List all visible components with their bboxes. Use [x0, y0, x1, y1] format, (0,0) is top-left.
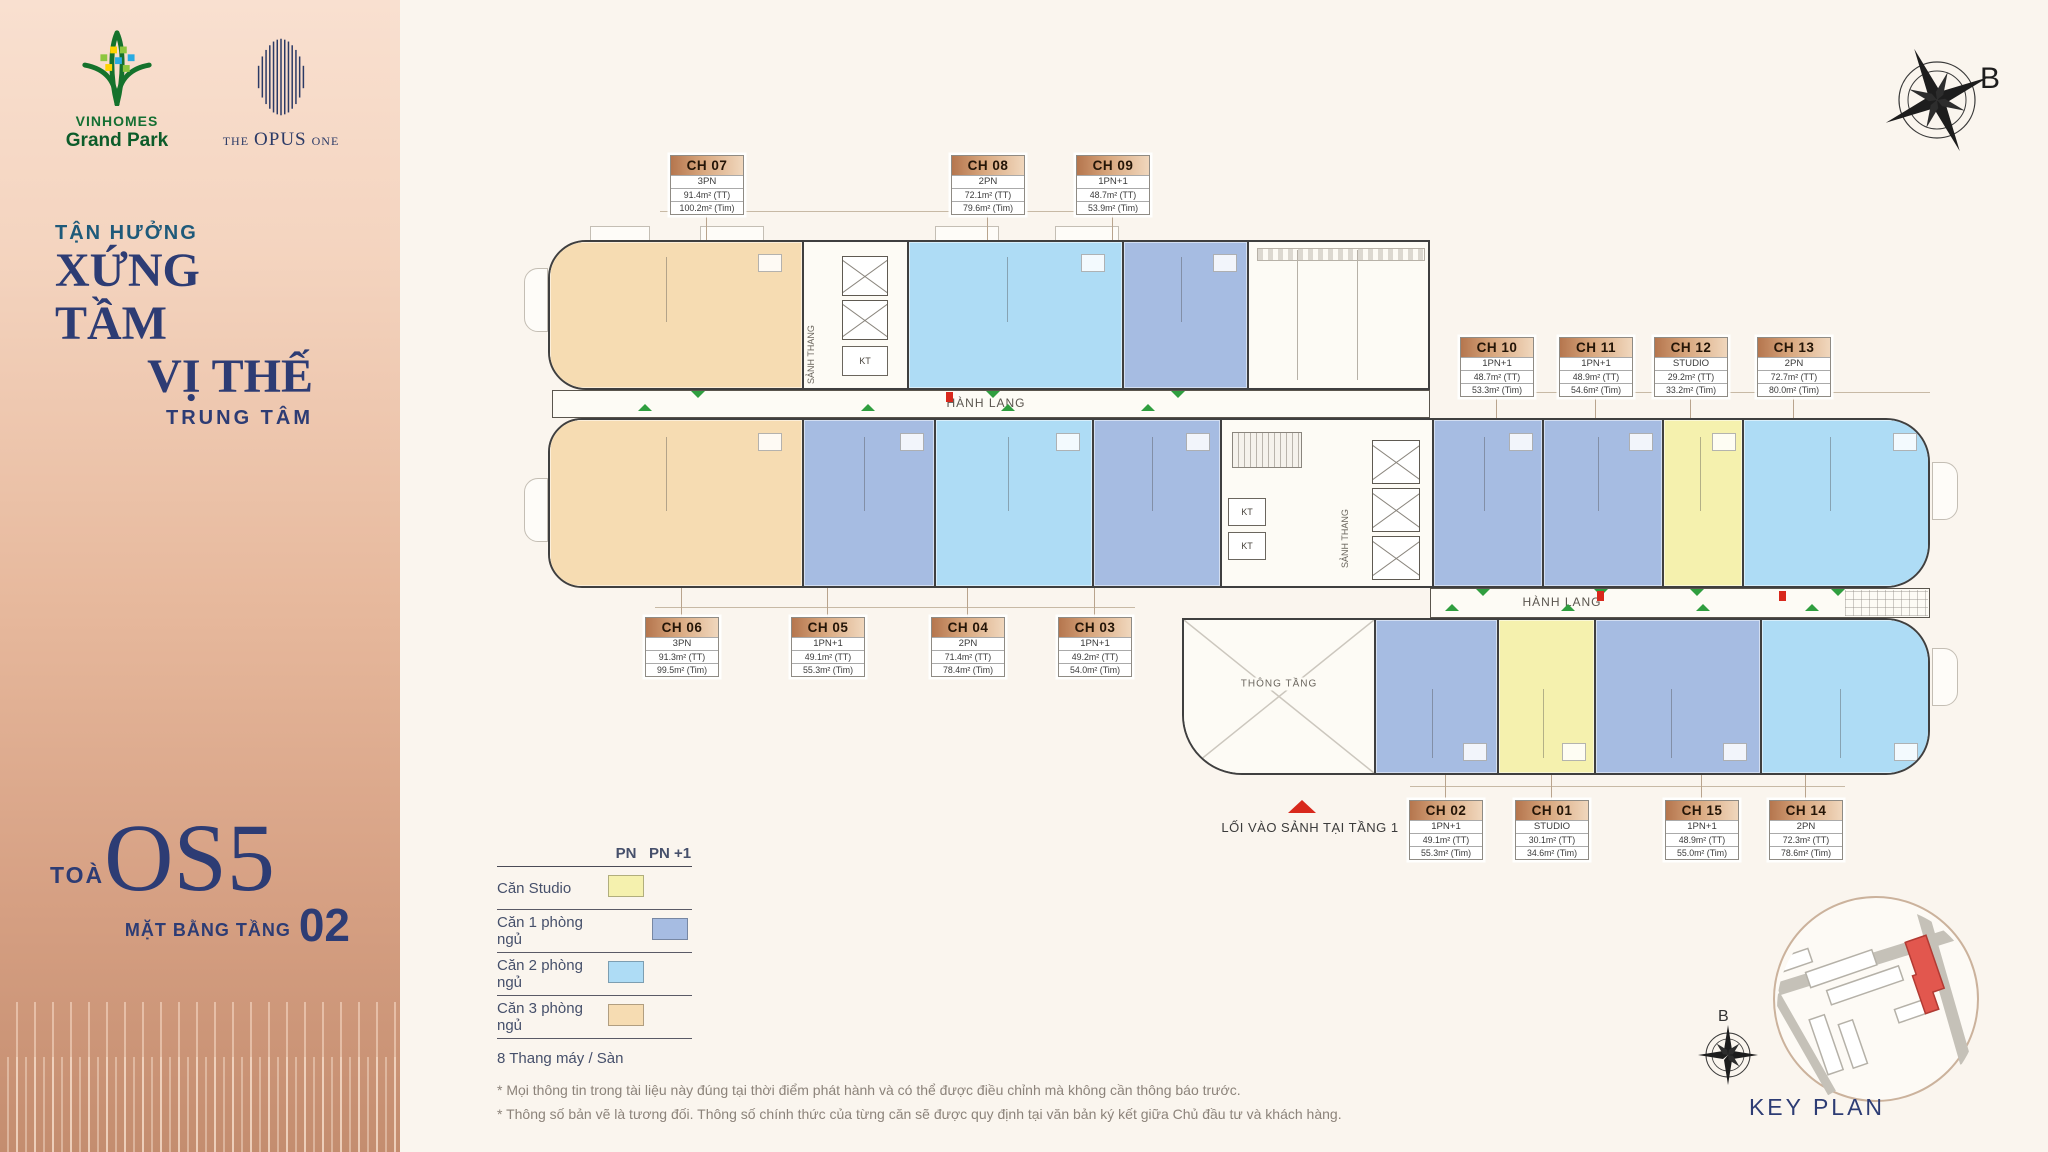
sidebar: VINHOMES Grand Park THE OPUS ONE — [0, 0, 400, 1152]
vinhomes-logo: VINHOMES Grand Park — [52, 28, 182, 152]
entry-tick — [1476, 589, 1490, 596]
opus-one-logo: THE OPUS ONE — [206, 34, 356, 151]
floor-number: 02 — [299, 905, 350, 946]
legend-swatch-3br — [608, 1004, 644, 1026]
vinhomes-logo-text: VINHOMES — [52, 113, 182, 129]
footnote-2: * Thông số bản vẽ là tương đối. Thông số… — [497, 1106, 1597, 1122]
elevators-note: 8 Thang máy / Sàn — [497, 1039, 692, 1073]
footnote-1: * Mọi thông tin trong tài liệu này đúng … — [497, 1082, 1597, 1098]
plan-service-area — [1247, 242, 1430, 388]
kt-shaft-label: KT — [1228, 498, 1266, 526]
leader-rail — [1410, 786, 1845, 787]
partition-line — [1297, 250, 1298, 380]
compass: B — [1862, 30, 2012, 175]
balcony-outline — [524, 478, 548, 542]
wing-top: SẢNH THANG KT — [548, 240, 1430, 390]
kt-shaft-label: KT — [1228, 532, 1266, 560]
tagline: TẬN HƯỞNG XỨNG TẦM VỊ THẾ TRUNG TÂM — [55, 222, 313, 430]
plan-unit-ch07 — [550, 242, 802, 388]
plan-unit-ch11 — [1542, 420, 1662, 586]
legend-swatch-1br — [652, 918, 688, 940]
plan-unit-ch05 — [802, 420, 934, 586]
wing-middle: KT KT SẢNH THANG — [548, 418, 1930, 588]
elevator-icon — [1372, 488, 1420, 532]
entry-tick — [861, 404, 875, 411]
keyplan-title: KEY PLAN — [1712, 1094, 1922, 1121]
unit-label-ch03: CH 031PN+1 49.2m² (TT)54.0m² (Tim) — [1058, 617, 1132, 677]
stair-lobby-label-top: SẢNH THANG — [806, 256, 816, 384]
unit-label-ch11: CH 111PN+1 48.9m² (TT)54.6m² (Tim) — [1559, 337, 1633, 397]
unit-label-ch04: CH 042PN 71.4m² (TT)78.4m² (Tim) — [931, 617, 1005, 677]
leader-line — [987, 212, 988, 240]
building-title: TOÀ OS5 MẶT BẰNG TẦNG 02 — [50, 812, 360, 947]
leader-line — [1445, 775, 1446, 800]
plan-unit-ch14 — [1760, 620, 1930, 773]
stair-lobby-label-central: SẢNH THANG — [1340, 448, 1350, 568]
unit-label-ch08: CH 082PN 72.1m² (TT)79.6m² (Tim) — [951, 155, 1025, 215]
legend-row-studio: Căn Studio — [497, 867, 692, 910]
plan-void: THÔNG TẦNG — [1184, 620, 1374, 773]
entrance-arrow-icon — [1288, 800, 1316, 813]
leader-line — [1701, 775, 1702, 800]
plan-unit-ch08 — [907, 242, 1122, 388]
building-name: OS5 — [104, 812, 275, 903]
building-prefix: TOÀ — [50, 862, 104, 889]
leader-line — [1805, 775, 1806, 800]
unit-label-ch02: CH 021PN+1 49.1m² (TT)55.3m² (Tim) — [1409, 800, 1483, 860]
unit-label-ch09: CH 091PN+1 48.7m² (TT)53.9m² (Tim) — [1076, 155, 1150, 215]
leader-line — [967, 588, 968, 617]
tagline-line2: XỨNG TẦM — [55, 245, 313, 351]
balcony-outline — [524, 268, 548, 332]
leader-line — [681, 588, 682, 617]
unit-label-ch07: CH 073PN 91.4m² (TT)100.2m² (Tim) — [670, 155, 744, 215]
elevator-icon — [842, 300, 888, 340]
void-label: THÔNG TẦNG — [1237, 678, 1321, 691]
sidebar-lines-decoration-2 — [0, 1057, 400, 1152]
floor-plan-poster: VINHOMES Grand Park THE OPUS ONE — [0, 0, 2048, 1152]
keyplan-compass — [1697, 1024, 1759, 1091]
plan-unit-ch12 — [1662, 420, 1742, 586]
plan-unit-ch04 — [934, 420, 1092, 586]
leader-line — [1112, 212, 1113, 240]
plan-unit-ch15 — [1594, 620, 1760, 773]
plan-unit-ch02 — [1374, 620, 1497, 773]
legend-col-pn1: PN +1 — [648, 845, 692, 862]
unit-label-ch15: CH 151PN+1 48.9m² (TT)55.0m² (Tim) — [1665, 800, 1739, 860]
leader-rail — [655, 607, 1135, 608]
stairs-icon — [1232, 432, 1302, 468]
unit-label-ch10: CH 101PN+1 48.7m² (TT)53.3m² (Tim) — [1460, 337, 1534, 397]
electrical-cabinet-mark — [1779, 591, 1786, 601]
legend: PN PN +1 Căn Studio Căn 1 phòng ngủ Căn … — [497, 840, 692, 1073]
keyplan-map — [1770, 893, 1982, 1110]
entry-tick — [1831, 589, 1845, 596]
plan-unit-ch01 — [1497, 620, 1594, 773]
elevator-icon — [842, 256, 888, 296]
opus-one-lines-icon — [253, 34, 309, 120]
leader-line — [1094, 588, 1095, 617]
balcony-outline — [1932, 462, 1958, 520]
plan-unit-ch10 — [1432, 420, 1542, 586]
partition-line — [1357, 250, 1358, 380]
legend-swatch-2br — [608, 961, 644, 983]
legend-row-1br: Căn 1 phòng ngủ — [497, 910, 692, 953]
tagline-line3: VỊ THẾ — [55, 351, 313, 404]
elevator-icon — [1372, 440, 1420, 484]
unit-label-ch14: CH 142PN 72.3m² (TT)78.6m² (Tim) — [1769, 800, 1843, 860]
tagline-line1: TẬN HƯỞNG — [55, 222, 313, 245]
entry-tick — [1561, 604, 1575, 611]
connector-hatch — [1845, 590, 1928, 616]
louver-strip — [1257, 248, 1425, 261]
entry-tick — [1690, 589, 1704, 596]
entry-tick — [1445, 604, 1459, 611]
entry-tick — [1805, 604, 1819, 611]
plan-unit-ch13 — [1742, 420, 1930, 586]
floor-label: MẶT BẰNG TẦNG — [125, 920, 291, 941]
entry-tick — [1141, 404, 1155, 411]
electrical-cabinet-mark — [946, 392, 953, 402]
leader-line — [827, 588, 828, 617]
electrical-cabinet-mark — [1597, 591, 1604, 601]
kt-shaft-label: KT — [842, 346, 888, 376]
unit-label-ch13: CH 132PN 72.7m² (TT)80.0m² (Tim) — [1757, 337, 1831, 397]
compass-label: B — [1980, 62, 2000, 96]
entry-tick — [1696, 604, 1710, 611]
plan-unit-ch03 — [1092, 420, 1220, 586]
elevator-icon — [1372, 536, 1420, 580]
legend-header: PN PN +1 — [497, 840, 692, 867]
legend-row-3br: Căn 3 phòng ngủ — [497, 996, 692, 1039]
entry-tick — [638, 404, 652, 411]
corridor-label-1: HÀNH LANG — [896, 396, 1076, 410]
wing-bottom: THÔNG TẦNG — [1182, 618, 1930, 775]
opus-one-logo-text: THE OPUS ONE — [206, 129, 356, 151]
legend-swatch-studio — [608, 875, 644, 897]
balcony-outline — [1932, 648, 1958, 706]
plan-unit-ch06 — [550, 420, 802, 586]
leader-line — [1551, 775, 1552, 800]
legend-col-pn: PN — [604, 845, 648, 862]
grand-park-logo-text: Grand Park — [52, 130, 182, 152]
entry-tick — [1171, 391, 1185, 398]
unit-label-ch01: CH 01STUDIO 30.1m² (TT)34.6m² (Tim) — [1515, 800, 1589, 860]
unit-label-ch12: CH 12STUDIO 29.2m² (TT)33.2m² (Tim) — [1654, 337, 1728, 397]
entrance-note: LỐI VÀO SẢNH TẠI TẦNG 1 — [1190, 820, 1430, 835]
entry-tick — [986, 391, 1000, 398]
tagline-line4: TRUNG TÂM — [55, 407, 313, 430]
vinhomes-tree-icon — [69, 28, 165, 106]
entry-tick — [1001, 404, 1015, 411]
unit-label-ch05: CH 051PN+1 49.1m² (TT)55.3m² (Tim) — [791, 617, 865, 677]
entry-tick — [691, 391, 705, 398]
unit-label-ch06: CH 063PN 91.3m² (TT)99.5m² (Tim) — [645, 617, 719, 677]
plan-unit-ch09 — [1122, 242, 1247, 388]
leader-line — [706, 212, 707, 240]
legend-row-2br: Căn 2 phòng ngủ — [497, 953, 692, 996]
